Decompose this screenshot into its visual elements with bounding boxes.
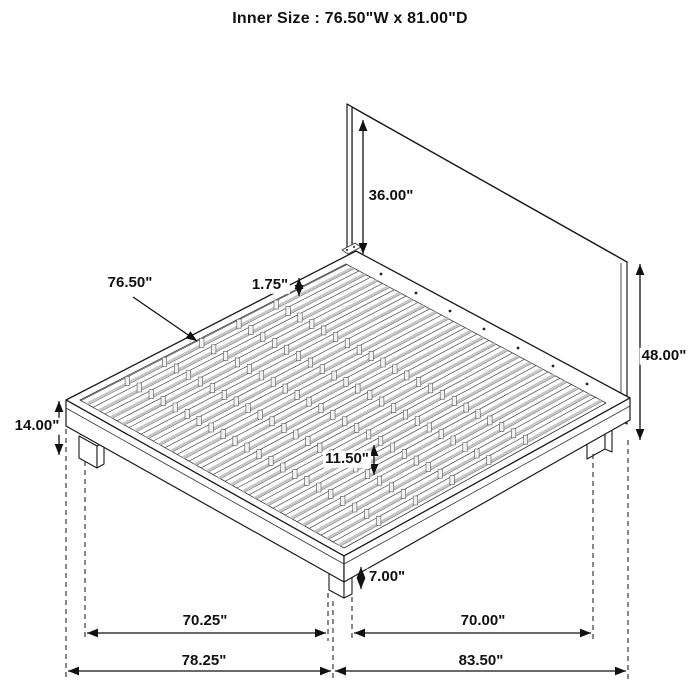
slat-clip [355, 423, 359, 432]
slat-clip [464, 403, 468, 412]
slat-clip [319, 404, 323, 413]
slat-clip [368, 391, 372, 400]
slat-clip [343, 417, 347, 426]
dim-label-platform-height: 14.00" [13, 418, 62, 435]
slat-clip [426, 463, 430, 472]
slat-clip [318, 443, 322, 452]
slat-clip [439, 430, 443, 439]
dim-label-center-support-spacing: 11.50" [323, 451, 371, 468]
slat-clip [475, 449, 479, 458]
slat-clip [488, 416, 492, 425]
slat-clip [344, 378, 348, 387]
slat-clip [259, 371, 263, 380]
slat-clip [356, 384, 360, 393]
slat-clip [320, 365, 324, 374]
slat-clip [186, 371, 190, 380]
diagram-title: Inner Size : 76.50"W x 81.00"D [0, 10, 700, 28]
slat-clip [269, 456, 273, 465]
slat-clip [365, 510, 369, 519]
bed-illustration [0, 0, 700, 700]
dim-label-leg-height: 7.00" [367, 569, 407, 586]
dim-label-headboard-height: 48.00" [640, 348, 689, 365]
slat-clip [261, 332, 265, 341]
slat-clip [333, 332, 337, 341]
slat-clip [281, 463, 285, 472]
slat-clip [200, 338, 204, 347]
slat-clip [452, 397, 456, 406]
dim-label-overall-width: 78.25" [180, 653, 229, 670]
bed-dimension-diagram: Inner Size : 76.50"W x 81.00"D 36.00" 76… [0, 0, 700, 700]
slat-clip [270, 417, 274, 426]
leader-arrow-76-50 [133, 297, 197, 341]
slat-clip [366, 430, 370, 439]
slat-clip [174, 364, 178, 373]
slat-clip [306, 437, 310, 446]
slat-clip [209, 423, 213, 432]
slat-clip [476, 410, 480, 419]
headboard-left-edge [347, 104, 352, 252]
slat-clip [234, 397, 238, 406]
slat-clip [273, 339, 277, 348]
slat-clip [389, 483, 393, 492]
slat-clip [377, 476, 381, 485]
slat-clip [198, 377, 202, 386]
slat-clip [258, 410, 262, 419]
slat-clip [317, 483, 321, 492]
slat-clip [403, 410, 407, 419]
slat-clip [283, 384, 287, 393]
slat-clip [162, 357, 166, 366]
slat-clip [210, 384, 214, 393]
slat-clip [246, 404, 250, 413]
slat-clip [257, 450, 261, 459]
slat-clip [149, 390, 153, 399]
slat-clip [427, 423, 431, 432]
slat-clip [125, 376, 129, 385]
slat-clip [415, 417, 419, 426]
slat-clip [331, 410, 335, 419]
slat-clip [295, 391, 299, 400]
slat-clip [249, 326, 253, 335]
slat-clip [271, 378, 275, 387]
slat-clip [357, 345, 361, 354]
slat-clip [378, 437, 382, 446]
slat-clip [428, 384, 432, 393]
slat-clip [377, 516, 381, 525]
slat-clip [298, 313, 302, 322]
slat-clip [345, 339, 349, 348]
slat-clip [296, 352, 300, 361]
slat-clip [500, 422, 504, 431]
dim-label-front-leg-span: 70.25" [181, 613, 230, 630]
slat-clip [286, 307, 290, 316]
slat-clip [185, 410, 189, 419]
slat-clip [414, 456, 418, 465]
slat-clip [365, 470, 369, 479]
slat-clip [440, 390, 444, 399]
slat-clip [284, 345, 288, 354]
slat-clip [294, 430, 298, 439]
slat-clip [402, 450, 406, 459]
slat-clip [369, 352, 373, 361]
dim-label-side-leg-span: 70.00" [459, 613, 508, 630]
dim-label-slat-area-width: 76.50" [106, 275, 155, 292]
slat-clip [197, 416, 201, 425]
slat-clip [381, 358, 385, 367]
slat-clip [390, 443, 394, 452]
slat-clip [307, 397, 311, 406]
slat-clip [416, 377, 420, 386]
slat-clip [247, 364, 251, 373]
slat-clip [233, 436, 237, 445]
slat-clip [212, 345, 216, 354]
slat-clip [511, 429, 515, 438]
slat-clip [305, 476, 309, 485]
slat-clip [332, 371, 336, 380]
slat-clip [235, 358, 239, 367]
slat-clip [137, 383, 141, 392]
dim-label-headboard-above-platform: 36.00" [367, 188, 416, 205]
slat-clip [329, 490, 333, 499]
slat-clip [405, 371, 409, 380]
slat-clip [450, 476, 454, 485]
slat-clip [413, 496, 417, 505]
dim-label-slat-gap: 1.75" [250, 277, 290, 294]
slat-clip [451, 436, 455, 445]
slat-clip [282, 423, 286, 432]
slat-clip [322, 326, 326, 335]
slat-clip [523, 435, 527, 444]
slat-clip [487, 456, 491, 465]
slat-clip [237, 319, 241, 328]
slat-clip [310, 319, 314, 328]
slat-clip [393, 365, 397, 374]
dim-label-overall-depth: 83.50" [457, 653, 506, 670]
slat-clip [341, 496, 345, 505]
slat-clip [245, 443, 249, 452]
slat-clip [221, 430, 225, 439]
slat-clip [380, 397, 384, 406]
slat-clip [438, 469, 442, 478]
slat-clip [274, 300, 278, 309]
slat-clip [173, 403, 177, 412]
slat-clip [223, 351, 227, 360]
slat-clip [401, 489, 405, 498]
slat-clip [353, 503, 357, 512]
slat-clip [222, 390, 226, 399]
slat-clip [463, 443, 467, 452]
slat-clip [161, 396, 165, 405]
slat-clip [308, 358, 312, 367]
slat-clip [391, 404, 395, 413]
slat-clip [293, 470, 297, 479]
